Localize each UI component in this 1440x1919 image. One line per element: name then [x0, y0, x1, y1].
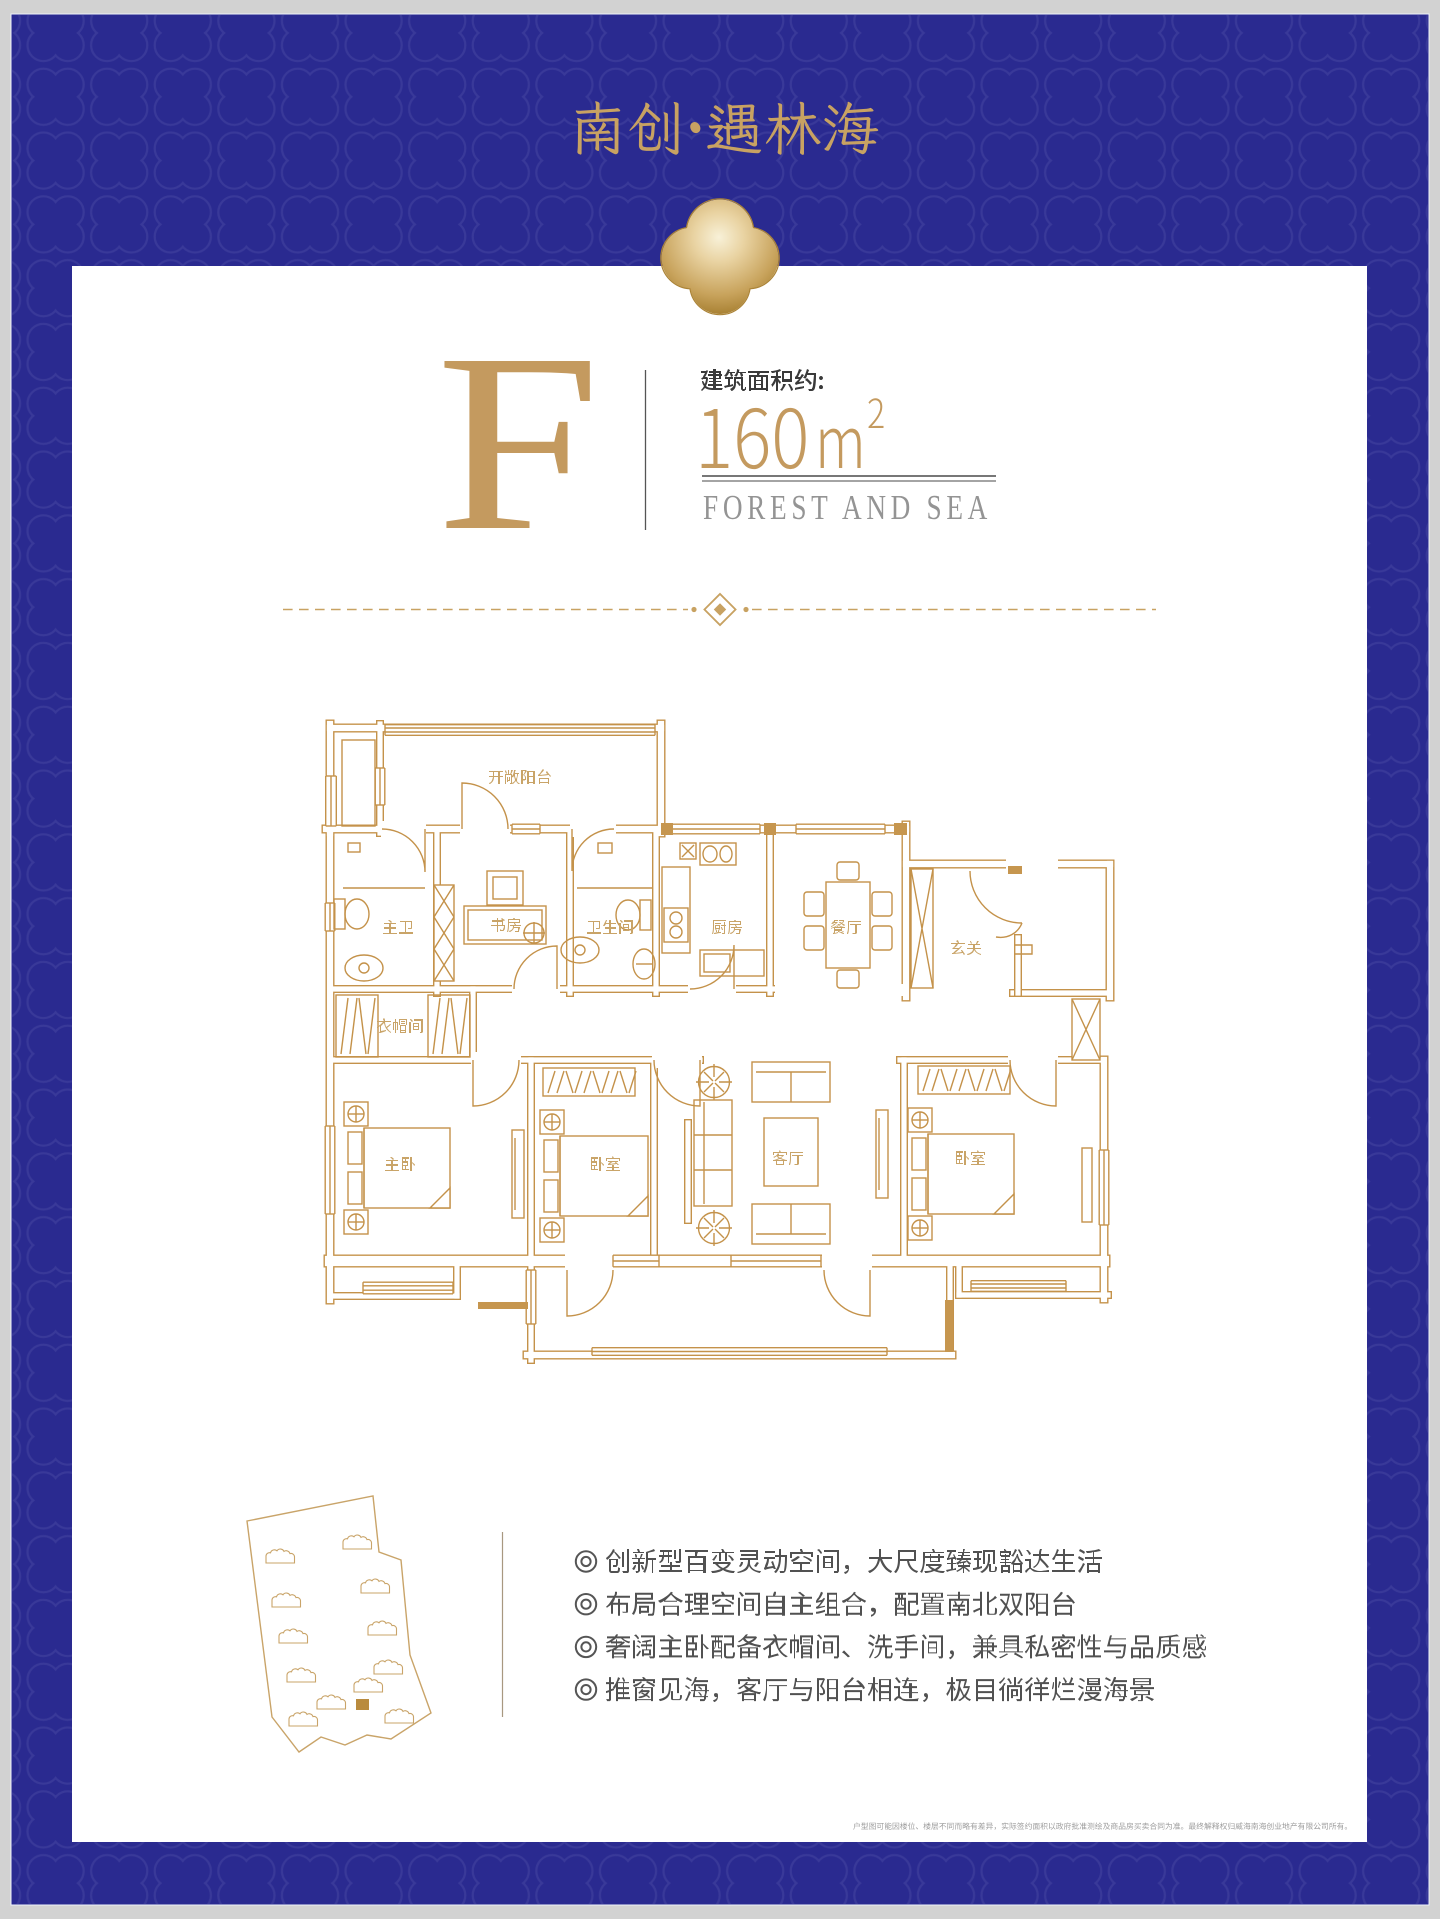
svg-text:FOREST AND SEA: FOREST AND SEA [703, 488, 992, 527]
